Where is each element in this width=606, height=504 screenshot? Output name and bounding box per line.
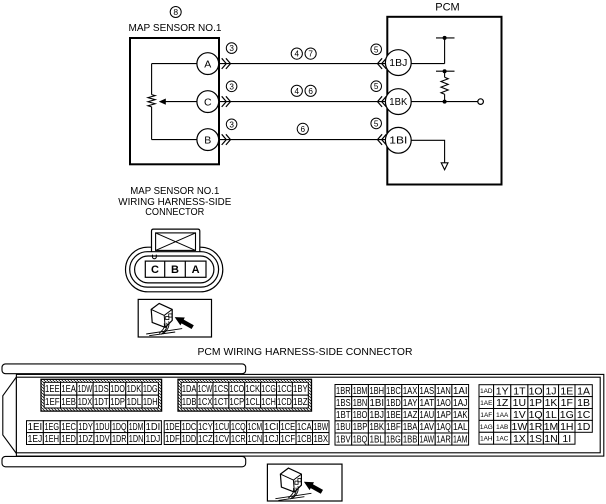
svg-text:1AJ: 1AJ <box>453 398 468 409</box>
svg-text:1CI: 1CI <box>264 422 279 433</box>
svg-text:3: 3 <box>229 82 234 91</box>
svg-text:1AG: 1AG <box>480 424 493 431</box>
svg-text:1AC: 1AC <box>496 436 509 443</box>
svg-text:1EC: 1EC <box>61 422 76 433</box>
svg-text:1B: 1B <box>577 397 590 409</box>
svg-text:1AB: 1AB <box>496 424 508 431</box>
svg-text:1AI: 1AI <box>453 386 468 397</box>
svg-text:1CK: 1CK <box>245 384 260 395</box>
svg-text:CONNECTOR: CONNECTOR <box>145 207 204 218</box>
svg-text:1S: 1S <box>529 433 542 445</box>
svg-text:1AU: 1AU <box>420 410 435 421</box>
svg-text:1DS: 1DS <box>94 384 109 395</box>
svg-text:1F: 1F <box>561 397 573 409</box>
svg-text:1BJ: 1BJ <box>369 410 384 421</box>
svg-text:1V: 1V <box>513 409 526 421</box>
svg-text:1AN: 1AN <box>436 386 451 397</box>
svg-text:1CT: 1CT <box>214 397 229 408</box>
svg-text:1CC: 1CC <box>277 384 292 395</box>
svg-text:1EG: 1EG <box>44 422 59 433</box>
svg-text:1AQ: 1AQ <box>436 422 451 433</box>
svg-text:A: A <box>204 58 211 70</box>
svg-text:1Z: 1Z <box>496 397 509 409</box>
svg-text:1CE: 1CE <box>281 422 296 433</box>
svg-text:1CH: 1CH <box>261 397 276 408</box>
svg-text:1AH: 1AH <box>480 436 493 443</box>
svg-text:PCM WIRING HARNESS-SIDE CONNEC: PCM WIRING HARNESS-SIDE CONNECTOR <box>198 347 413 358</box>
svg-text:1DQ: 1DQ <box>112 422 127 433</box>
svg-text:1EE: 1EE <box>45 384 60 395</box>
svg-text:1EI: 1EI <box>28 422 43 433</box>
svg-text:1AZ: 1AZ <box>403 410 418 421</box>
svg-text:1DH: 1DH <box>143 397 158 408</box>
svg-text:1CM: 1CM <box>248 422 263 433</box>
svg-text:1DB: 1DB <box>182 397 197 408</box>
svg-text:1BM: 1BM <box>353 386 368 397</box>
svg-text:1BE: 1BE <box>386 410 401 421</box>
svg-text:1Y: 1Y <box>496 385 509 397</box>
svg-text:1T: 1T <box>513 385 526 397</box>
svg-text:1AL: 1AL <box>453 422 468 433</box>
svg-text:1DW: 1DW <box>78 384 93 395</box>
svg-text:1BA: 1BA <box>403 422 418 433</box>
svg-text:1CD: 1CD <box>277 397 292 408</box>
svg-text:1BQ: 1BQ <box>353 434 368 445</box>
svg-text:1BL: 1BL <box>369 434 384 445</box>
svg-text:1CS: 1CS <box>214 384 229 395</box>
svg-text:1DT: 1DT <box>94 397 109 408</box>
svg-text:1I: 1I <box>562 433 571 445</box>
svg-text:1BF: 1BF <box>386 422 401 433</box>
svg-text:1R: 1R <box>529 421 543 433</box>
svg-text:1BY: 1BY <box>293 384 308 395</box>
svg-text:1CY: 1CY <box>198 422 213 433</box>
svg-text:1BB: 1BB <box>403 434 418 445</box>
svg-text:1CR: 1CR <box>231 434 246 445</box>
svg-text:1AF: 1AF <box>480 412 492 419</box>
svg-text:1K: 1K <box>545 397 558 409</box>
svg-text:1M: 1M <box>544 421 559 433</box>
svg-text:8: 8 <box>173 7 178 17</box>
svg-text:1BS: 1BS <box>336 398 351 409</box>
svg-text:1A: 1A <box>577 385 590 397</box>
svg-text:1DI: 1DI <box>146 422 161 433</box>
svg-text:1DO: 1DO <box>110 384 125 395</box>
svg-text:B: B <box>204 134 211 146</box>
svg-text:1EH: 1EH <box>44 434 59 445</box>
svg-text:1BU: 1BU <box>336 422 351 433</box>
svg-text:1DV: 1DV <box>95 434 110 445</box>
svg-text:1DA: 1DA <box>182 384 197 395</box>
svg-text:1BO: 1BO <box>353 410 368 421</box>
svg-text:1CB: 1CB <box>297 434 312 445</box>
svg-text:1CQ: 1CQ <box>231 422 246 433</box>
svg-text:1DP: 1DP <box>110 397 125 408</box>
svg-text:1AP: 1AP <box>436 410 451 421</box>
svg-text:1CA: 1CA <box>297 422 312 433</box>
svg-text:1AA: 1AA <box>496 412 509 419</box>
svg-text:1E: 1E <box>560 385 573 397</box>
svg-text:1AD: 1AD <box>480 388 493 395</box>
svg-text:1EB: 1EB <box>61 397 76 408</box>
svg-text:1CP: 1CP <box>230 397 245 408</box>
svg-text:1EF: 1EF <box>45 397 60 408</box>
svg-text:1X: 1X <box>513 433 526 445</box>
svg-text:7: 7 <box>308 50 313 59</box>
svg-text:1CN: 1CN <box>248 434 263 445</box>
svg-text:1EJ: 1EJ <box>28 434 43 445</box>
svg-text:1BZ: 1BZ <box>293 397 308 408</box>
svg-text:1O: 1O <box>529 385 543 397</box>
svg-text:1L: 1L <box>545 409 557 421</box>
svg-text:1CO: 1CO <box>230 384 245 395</box>
svg-text:6: 6 <box>301 125 306 134</box>
svg-text:1AY: 1AY <box>403 398 418 409</box>
svg-text:1BD: 1BD <box>386 398 401 409</box>
svg-text:1DG: 1DG <box>143 384 158 395</box>
svg-text:5: 5 <box>374 45 379 54</box>
svg-text:1BR: 1BR <box>336 386 351 397</box>
svg-text:1CX: 1CX <box>198 397 213 408</box>
svg-text:6: 6 <box>308 87 313 96</box>
svg-text:1ED: 1ED <box>61 434 76 445</box>
svg-text:PCM: PCM <box>435 2 459 14</box>
svg-text:1P: 1P <box>529 397 542 409</box>
svg-text:MAP SENSOR NO.1: MAP SENSOR NO.1 <box>129 23 222 34</box>
svg-text:1AR: 1AR <box>436 434 451 445</box>
svg-text:1Q: 1Q <box>529 409 543 421</box>
svg-text:3: 3 <box>229 120 234 129</box>
svg-text:5: 5 <box>374 119 379 128</box>
svg-text:1BK: 1BK <box>389 97 407 108</box>
svg-text:1AX: 1AX <box>403 386 418 397</box>
svg-text:4: 4 <box>295 87 300 96</box>
svg-text:B: B <box>171 264 179 276</box>
svg-text:1H: 1H <box>560 421 573 433</box>
svg-text:1BX: 1BX <box>313 434 328 445</box>
svg-text:1DF: 1DF <box>165 434 180 445</box>
svg-text:1U: 1U <box>513 397 526 409</box>
svg-text:4: 4 <box>295 50 300 59</box>
svg-text:A: A <box>192 264 200 276</box>
svg-text:1BV: 1BV <box>336 434 351 445</box>
svg-text:1DK: 1DK <box>127 384 142 395</box>
svg-text:1BW: 1BW <box>313 422 328 433</box>
svg-text:1BK: 1BK <box>369 422 384 433</box>
svg-text:1BP: 1BP <box>353 422 368 433</box>
svg-text:1C: 1C <box>577 409 591 421</box>
svg-text:C: C <box>204 96 212 108</box>
svg-text:1BT: 1BT <box>336 410 351 421</box>
svg-text:1CU: 1CU <box>215 422 230 433</box>
svg-text:5: 5 <box>374 82 379 91</box>
svg-text:1BI: 1BI <box>389 136 407 147</box>
svg-text:1CL: 1CL <box>245 397 260 408</box>
svg-text:1DY: 1DY <box>78 422 93 433</box>
svg-text:1BN: 1BN <box>353 398 368 409</box>
svg-text:3: 3 <box>229 44 234 53</box>
svg-text:1DE: 1DE <box>165 422 180 433</box>
svg-text:1DN: 1DN <box>129 434 144 445</box>
svg-text:1DD: 1DD <box>182 434 197 445</box>
svg-text:1D: 1D <box>577 421 591 433</box>
svg-text:1AV: 1AV <box>420 422 435 433</box>
svg-text:1AW: 1AW <box>420 434 435 445</box>
svg-text:1BJ: 1BJ <box>389 58 407 69</box>
svg-text:1BH: 1BH <box>369 386 384 397</box>
svg-text:1EA: 1EA <box>61 384 76 395</box>
svg-text:MAP SENSOR NO.1: MAP SENSOR NO.1 <box>130 186 219 197</box>
svg-text:1DC: 1DC <box>182 422 197 433</box>
svg-text:1CJ: 1CJ <box>264 434 279 445</box>
svg-text:1AS: 1AS <box>420 386 435 397</box>
svg-text:1AM: 1AM <box>453 434 468 445</box>
svg-text:1DL: 1DL <box>127 397 142 408</box>
svg-text:1DZ: 1DZ <box>78 434 93 445</box>
svg-text:1AE: 1AE <box>480 400 492 407</box>
svg-text:1CF: 1CF <box>281 434 296 445</box>
svg-text:1DX: 1DX <box>78 397 93 408</box>
svg-text:1CV: 1CV <box>215 434 230 445</box>
svg-text:1N: 1N <box>544 433 557 445</box>
svg-text:1CG: 1CG <box>261 384 276 395</box>
svg-text:1J: 1J <box>545 385 556 397</box>
svg-text:1DR: 1DR <box>112 434 127 445</box>
svg-text:1BG: 1BG <box>386 434 401 445</box>
svg-text:1BC: 1BC <box>386 386 401 397</box>
svg-text:1CW: 1CW <box>198 384 213 395</box>
svg-text:1DM: 1DM <box>129 422 144 433</box>
svg-text:1CZ: 1CZ <box>198 434 213 445</box>
svg-text:1DU: 1DU <box>95 422 110 433</box>
svg-text:1W: 1W <box>512 421 528 433</box>
svg-text:1DJ: 1DJ <box>146 434 161 445</box>
svg-text:1G: 1G <box>560 409 574 421</box>
svg-text:C: C <box>151 264 159 276</box>
svg-text:1AT: 1AT <box>420 398 435 409</box>
svg-text:1AK: 1AK <box>453 410 468 421</box>
svg-text:1BI: 1BI <box>369 398 384 409</box>
svg-text:1AO: 1AO <box>436 398 451 409</box>
